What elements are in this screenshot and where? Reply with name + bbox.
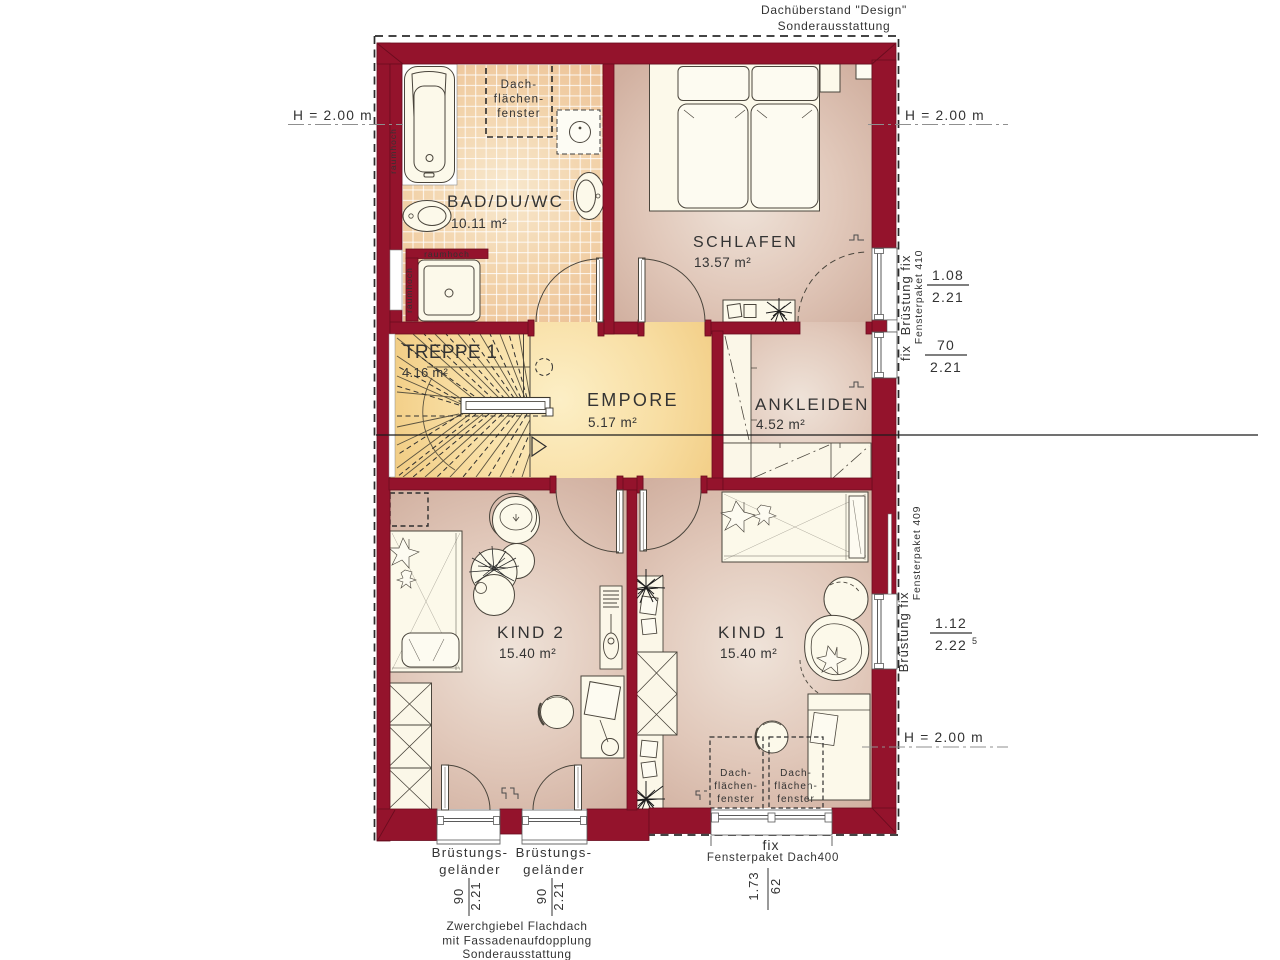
svg-text:Brüstung fix: Brüstung fix [896,592,911,673]
svg-text:flächen-: flächen- [774,781,818,792]
svg-text:Sonderausstattung: Sonderausstattung [462,947,571,960]
svg-text:H = 2.00 m: H = 2.00 m [904,730,984,745]
svg-text:Dach-: Dach- [501,79,538,91]
svg-text:Zwerchgiebel Flachdach: Zwerchgiebel Flachdach [446,919,587,933]
svg-text:70: 70 [937,337,955,353]
svg-text:Brüstungs-: Brüstungs- [432,845,509,860]
svg-text:2.21: 2.21 [932,289,964,305]
svg-text:fenster: fenster [777,794,815,805]
svg-text:KIND 2: KIND 2 [497,623,565,642]
svg-text:90: 90 [534,888,549,904]
svg-text:Brüstungs-: Brüstungs- [516,845,593,860]
svg-text:10.11 m²: 10.11 m² [451,216,507,231]
svg-text:flächen-: flächen- [494,94,545,106]
svg-text:4.16 m²: 4.16 m² [402,365,449,380]
svg-text:TREPPE 1: TREPPE 1 [403,342,497,363]
svg-text:62: 62 [768,878,783,894]
svg-text:13.57 m²: 13.57 m² [694,255,751,270]
svg-text:geländer: geländer [523,862,585,877]
svg-text:1.12: 1.12 [935,615,967,631]
svg-text:fenster: fenster [717,794,755,805]
svg-text:mit Fassadenaufdopplung: mit Fassadenaufdopplung [442,934,592,948]
svg-text:Fensterpaket Dach400: Fensterpaket Dach400 [707,852,839,864]
svg-text:2.21: 2.21 [930,359,962,375]
svg-text:4.52 m²: 4.52 m² [756,417,805,432]
svg-text:ANKLEIDEN: ANKLEIDEN [755,395,869,414]
svg-text:2.22: 2.22 [935,637,967,653]
svg-text:H = 2.00 m: H = 2.00 m [293,108,373,123]
svg-text:15.40 m²: 15.40 m² [720,646,777,661]
svg-text:fenster: fenster [497,108,541,120]
svg-text:fix: fix [763,837,780,853]
svg-text:fix: fix [898,345,913,361]
svg-text:2.21: 2.21 [468,881,483,910]
svg-text:Dach-: Dach- [780,768,812,779]
svg-text:1.08: 1.08 [932,267,964,283]
svg-text:raumhoch: raumhoch [424,249,470,259]
svg-text:Brüstung fix: Brüstung fix [898,255,913,336]
svg-text:2.21: 2.21 [551,881,566,910]
svg-text:15.40 m²: 15.40 m² [499,646,556,661]
svg-text:BAD/DU/WC: BAD/DU/WC [447,192,564,211]
svg-text:Dachüberstand "Design": Dachüberstand "Design" [761,3,907,17]
svg-text:SCHLAFEN: SCHLAFEN [693,234,798,251]
svg-text:Dach-: Dach- [720,768,752,779]
svg-text:Fensterpaket 409: Fensterpaket 409 [911,506,923,601]
svg-text:raumhoch: raumhoch [404,267,414,313]
svg-text:EMPORE: EMPORE [587,390,679,410]
svg-text:H = 2.00 m: H = 2.00 m [905,108,985,123]
svg-text:KIND 1: KIND 1 [718,623,786,642]
svg-text:raumhoch: raumhoch [388,128,398,174]
svg-text:Sonderausstattung: Sonderausstattung [778,19,891,33]
svg-text:geländer: geländer [439,862,501,877]
svg-text:5.17 m²: 5.17 m² [588,415,637,430]
svg-text:flächen-: flächen- [714,781,758,792]
svg-text:Fensterpaket 410: Fensterpaket 410 [913,250,925,345]
svg-text:90: 90 [451,888,466,904]
svg-text:1.73: 1.73 [746,871,761,900]
svg-text:5: 5 [972,636,977,646]
